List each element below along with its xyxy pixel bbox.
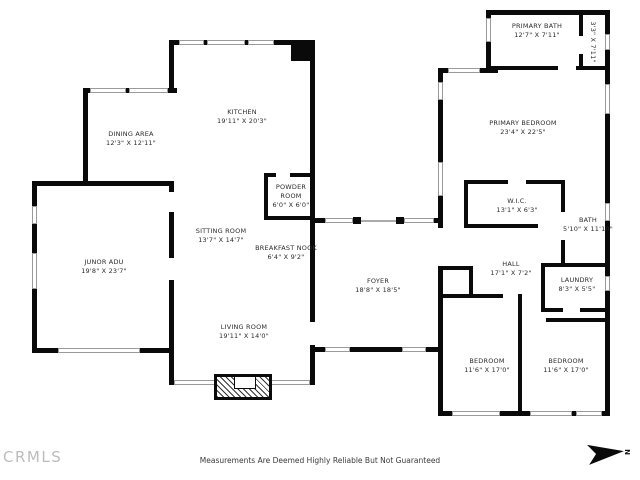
window (325, 218, 353, 223)
wall (486, 10, 610, 15)
room-label-primary-bedroom: PRIMARY BEDROOM 23'4" X 22'5" (489, 119, 556, 137)
sliding-door (58, 348, 140, 353)
wall (438, 100, 443, 162)
room-label-foyer: FOYER 18'8" X 18'5" (355, 277, 401, 295)
wall (438, 266, 443, 415)
wall (546, 318, 607, 322)
floor-plan: KITCHEN 19'11" X 20'3" DINING AREA 12'3"… (0, 0, 640, 480)
wall (438, 266, 473, 270)
room-label-primary-bath: PRIMARY BATH 12'7" X 7'11" (512, 22, 562, 40)
room-label-laundry: LAUNDRY 8'3" X 5'5" (559, 276, 596, 294)
window (32, 253, 37, 289)
room-label-bedroom-left: BEDROOM 11'6" X 17'0" (464, 357, 510, 375)
room-label-bedroom-right: BEDROOM 11'6" X 17'0" (543, 357, 589, 375)
room-label-bath: BATH 5'10" X 11'10" (563, 216, 613, 234)
wall (580, 308, 610, 312)
window (266, 380, 310, 385)
wall (541, 308, 563, 312)
north-arrow-icon (585, 439, 627, 467)
room-label-breakfast-nook: BREAKFAST NOOK 6'4" X 9'2" (255, 244, 317, 262)
north-letter: N (623, 449, 631, 455)
window (605, 84, 610, 114)
wall (264, 216, 315, 220)
firebox (234, 376, 256, 389)
wall (83, 88, 88, 185)
wall (464, 180, 508, 184)
room-label-powder-room: POWDER ROOM 6'0" X 6'0" (272, 183, 310, 209)
wall (169, 280, 174, 385)
wall (526, 180, 565, 184)
wall (438, 196, 443, 228)
window (129, 88, 168, 93)
wall (169, 40, 174, 93)
room-label-kitchen: KITCHEN 19'11" X 20'3" (217, 108, 267, 126)
window (605, 34, 610, 50)
wall (579, 10, 583, 36)
door-post (396, 217, 404, 224)
wall (310, 40, 315, 175)
room-label-living-room: LIVING ROOM 19'11" X 14'0" (219, 323, 269, 341)
wall (169, 212, 174, 258)
wall (441, 294, 503, 298)
window (576, 411, 602, 416)
wall (518, 294, 522, 415)
window (486, 18, 491, 42)
wall (541, 263, 545, 312)
wall (561, 180, 565, 212)
room-label-hall: HALL 17'1" X 7'2" (490, 260, 531, 278)
window (174, 380, 218, 385)
room-label-junor-adu: JUNOR ADU 19'8" X 23'7" (81, 258, 127, 276)
window (248, 40, 274, 45)
window (404, 218, 434, 223)
window (438, 82, 443, 100)
wall (315, 218, 325, 223)
window (438, 162, 443, 196)
disclaimer-text: Measurements Are Deemed Highly Reliable … (200, 456, 440, 465)
wall (464, 180, 468, 228)
wall (315, 347, 325, 352)
fireplace (214, 374, 272, 400)
wall (541, 263, 610, 267)
window (179, 40, 204, 45)
room-label-dining-area: DINING AREA 12'3" X 12'11" (106, 130, 156, 148)
entry-door (361, 220, 396, 222)
window (402, 347, 426, 352)
crmls-logo: CRMLS (3, 448, 62, 466)
wall (264, 173, 268, 220)
window (90, 88, 126, 93)
room-label-sitting-room: SITTING ROOM 13'7" X 14'7" (196, 227, 247, 245)
wall (290, 173, 315, 177)
window (605, 276, 610, 291)
wall (169, 181, 174, 192)
window (207, 40, 245, 45)
wall (464, 224, 538, 228)
wall (486, 66, 558, 70)
wall (350, 347, 402, 352)
room-label-wic: W.I.C. 13'1" X 6'3" (496, 197, 537, 215)
wall (32, 181, 174, 186)
door-post (353, 217, 361, 224)
window (452, 411, 500, 416)
window (32, 206, 37, 224)
window (448, 68, 480, 73)
wall (32, 348, 60, 353)
window (325, 347, 350, 352)
room-label-primary-closet: 3'3" X 7'11" (589, 21, 597, 62)
window (530, 411, 572, 416)
